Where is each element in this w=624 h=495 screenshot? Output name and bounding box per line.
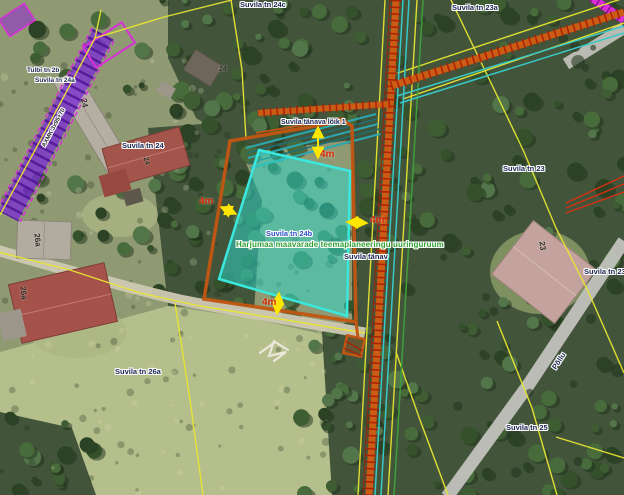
map-viewport[interactable]: Suvila tn 24c Suvila tn 23a Tulbi tn 2b … bbox=[0, 0, 624, 495]
power-line-branch bbox=[391, 12, 624, 86]
service-line-house-23 bbox=[566, 176, 624, 213]
cadastral-overlay bbox=[0, 0, 624, 495]
selected-parcel-suvila-24b[interactable] bbox=[219, 150, 350, 316]
setback-arrow-left bbox=[221, 207, 236, 214]
setback-arrow-right bbox=[347, 222, 367, 223]
